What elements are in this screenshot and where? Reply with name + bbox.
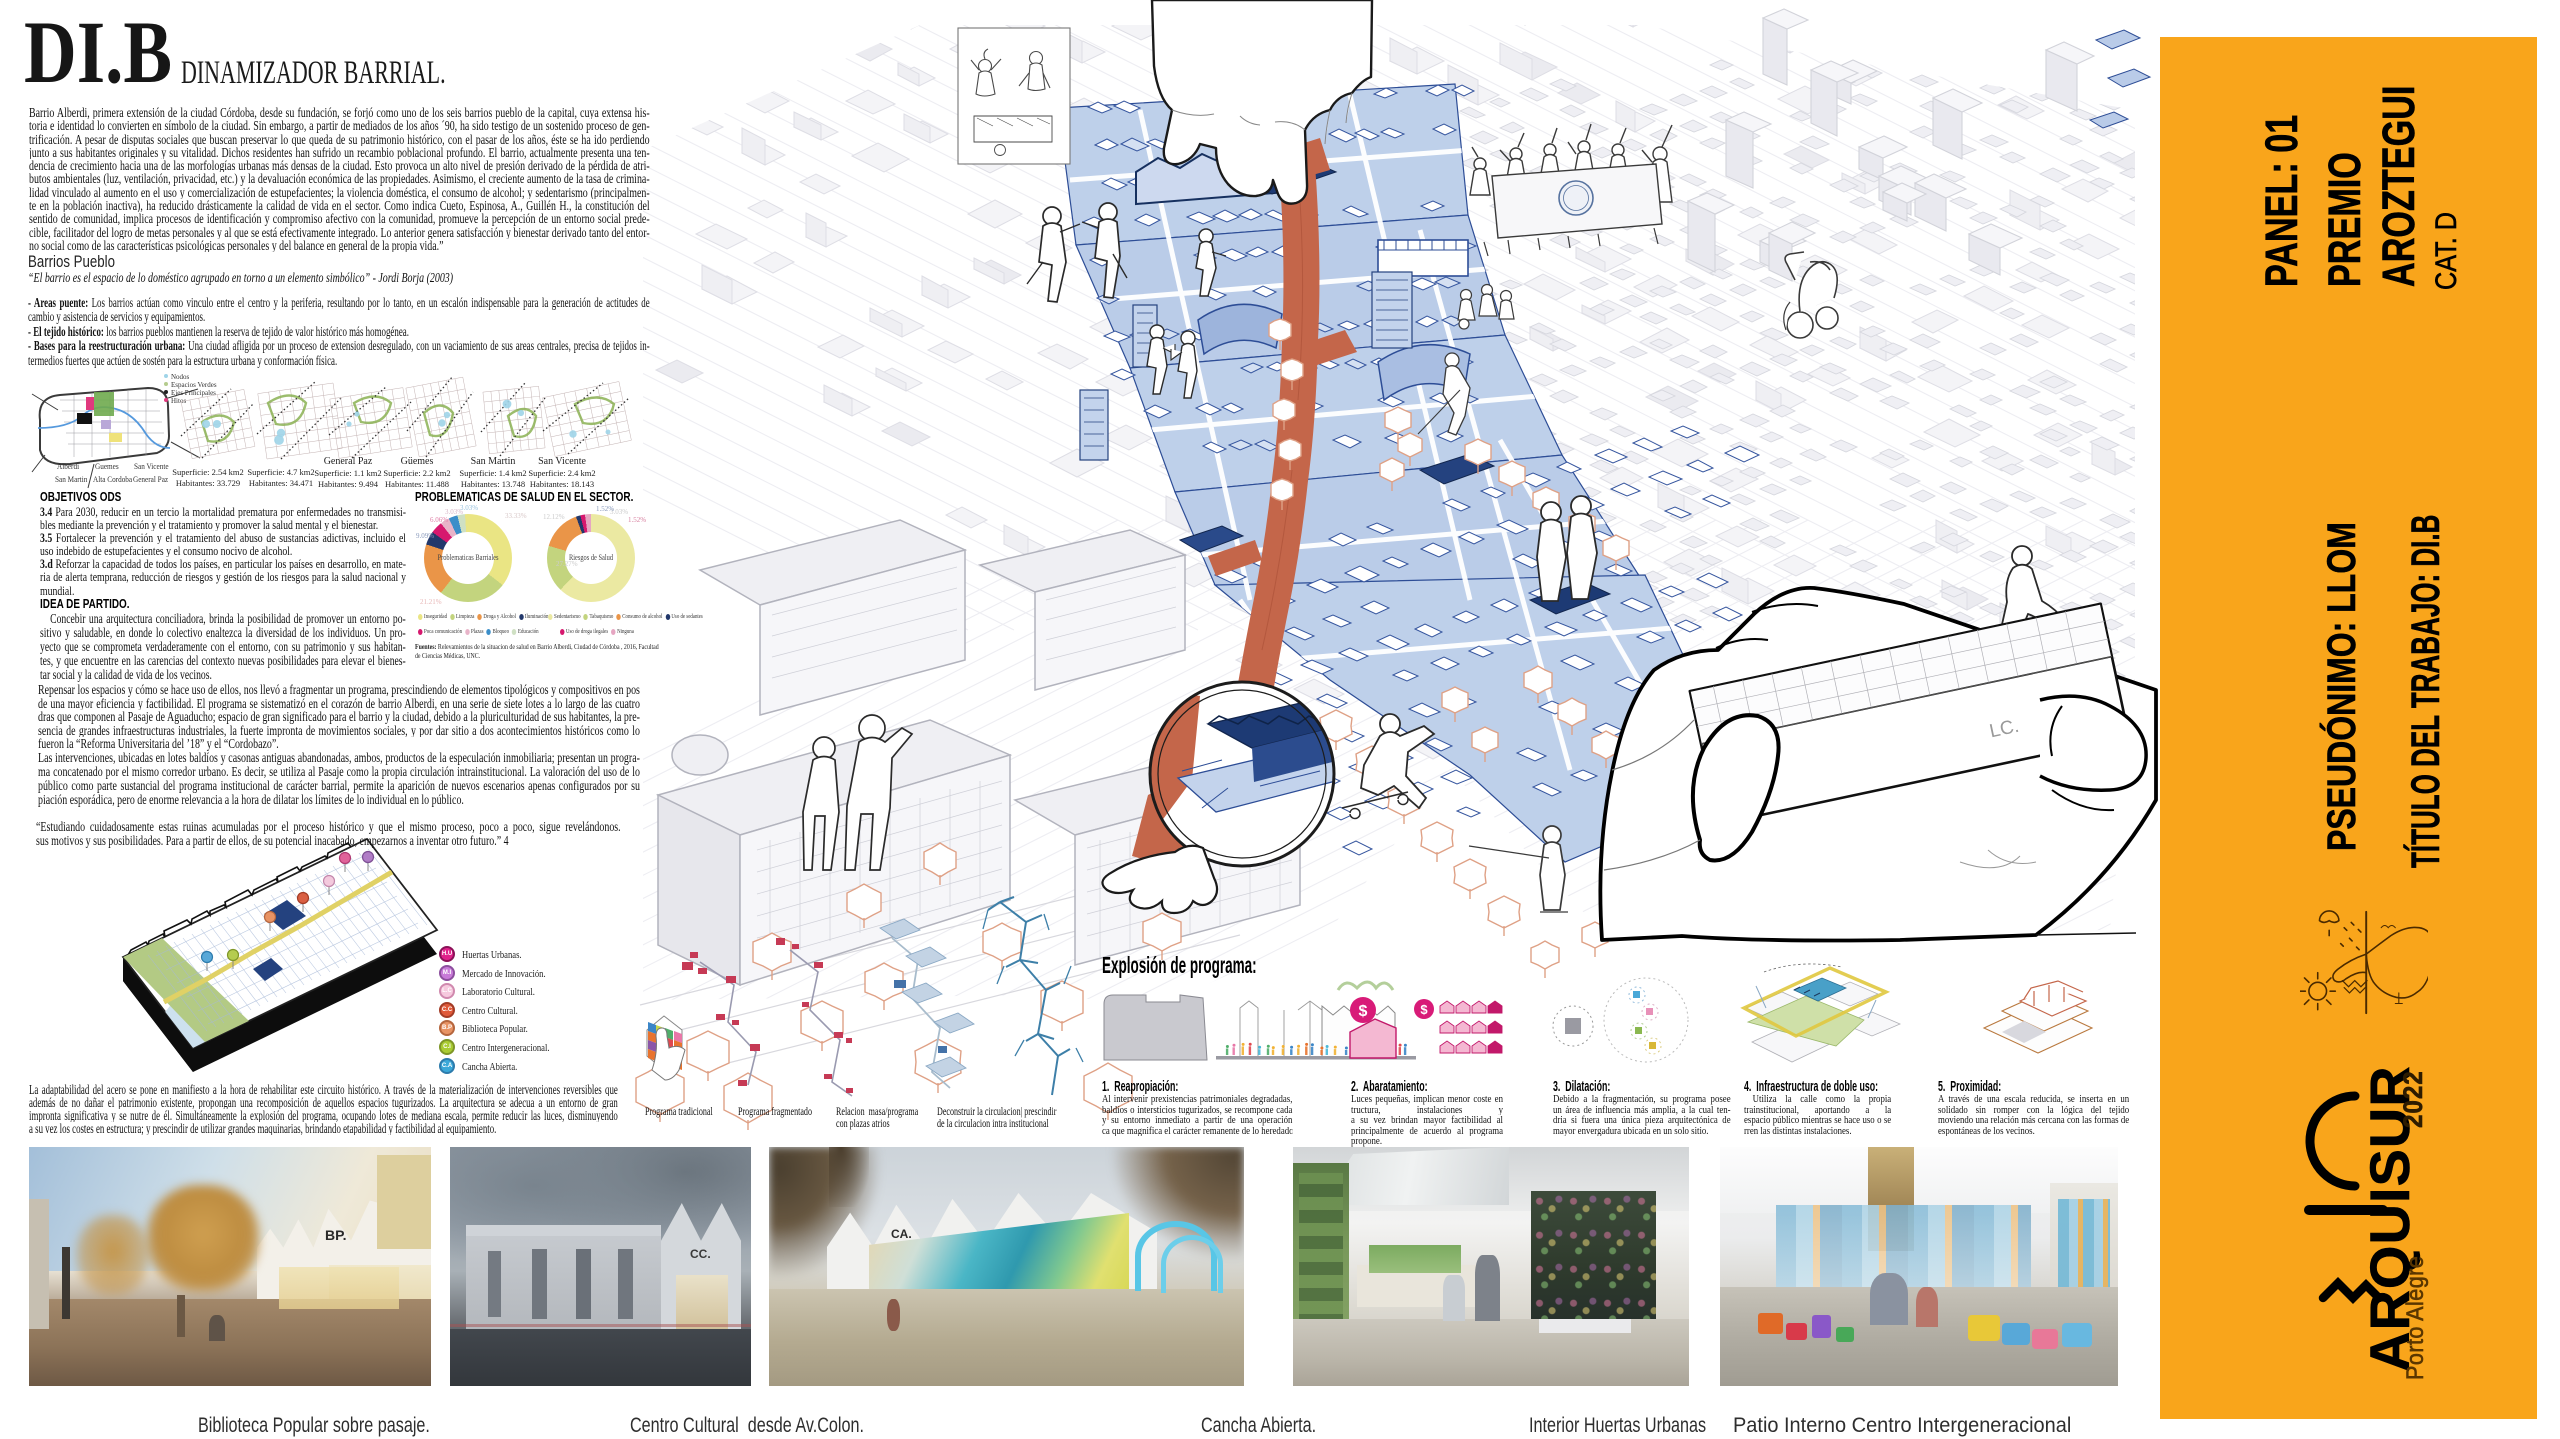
svg-text:Ejes Principales: Ejes Principales: [171, 389, 216, 397]
svg-text:Espacios Verdes: Espacios Verdes: [171, 381, 217, 389]
svg-text:$: $: [1359, 1003, 1368, 1020]
svg-text:Nodos: Nodos: [171, 373, 190, 381]
svg-text:$: $: [1420, 1002, 1428, 1017]
